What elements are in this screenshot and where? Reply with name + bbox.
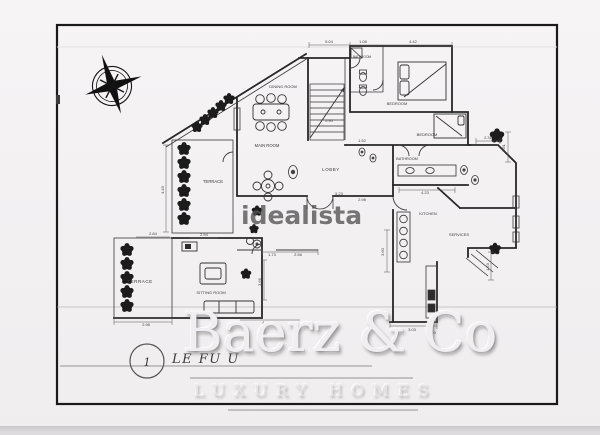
tagline-divider-top (190, 377, 413, 379)
room-label: LOBBY (322, 167, 340, 172)
room-label: KITCHEN (419, 211, 437, 216)
baerz-co-watermark: Baerz & Co (183, 306, 497, 360)
room-label: MAIN ROOM (255, 143, 280, 148)
dim-label: 2.56 (294, 252, 303, 257)
dim-label: 5.23 (335, 191, 344, 196)
dim-label: 1.81 (501, 143, 506, 152)
room-label: BEDROOM (417, 132, 438, 137)
dim-label: 2.84 (149, 231, 158, 236)
idealista-watermark: idealista (241, 201, 362, 230)
dim-label: 4.42 (409, 39, 418, 44)
dim-label: 1.08 (359, 39, 368, 44)
luxury-homes-tagline: LUXURY HOMES (194, 381, 437, 400)
dim-label: 2.98 (142, 322, 151, 327)
room-label: TERRACE (203, 179, 223, 184)
beds (398, 62, 466, 138)
compass-rose-icon (75, 45, 150, 122)
dim-label: 5.04 (325, 39, 334, 44)
floor-number: 1 (144, 356, 151, 369)
room-label: BATHROOM (353, 55, 372, 59)
dim-label: 1.73 (268, 252, 277, 257)
room-label: BATHROOM (396, 157, 418, 161)
walls-outer (114, 46, 516, 322)
dim-label: 1.52 (358, 138, 367, 143)
dim-label: 3.66 (257, 277, 262, 286)
staircase (310, 84, 344, 140)
room-label: SITTING ROOM (196, 290, 225, 295)
dining-table (253, 94, 289, 132)
dim-label: 1.53 (485, 262, 490, 271)
room-label: SERVICES (449, 232, 469, 237)
room-label: TERRACE (127, 279, 152, 284)
room-label: DINING ROOM (269, 84, 297, 89)
dim-label: 4.23 (421, 190, 430, 195)
scanner-edge-shadow (0, 426, 600, 435)
walls-inner (114, 46, 519, 318)
dim-label: 3.60 (380, 247, 385, 256)
tagline-divider-bottom (228, 409, 418, 411)
dim-label: 2.94 (200, 232, 209, 237)
dim-label: 2.31 (484, 135, 493, 140)
dim-label: 0.90 (325, 118, 334, 123)
kitchen-counter (397, 212, 410, 262)
bathroom-fixtures (289, 48, 479, 185)
scanned-floor-plan-page: DINING ROOM MAIN ROOM LOBBY BEDROOM BEDR… (0, 0, 600, 435)
dim-label: 4.43 (160, 185, 165, 194)
room-label: BEDROOM (387, 101, 408, 106)
